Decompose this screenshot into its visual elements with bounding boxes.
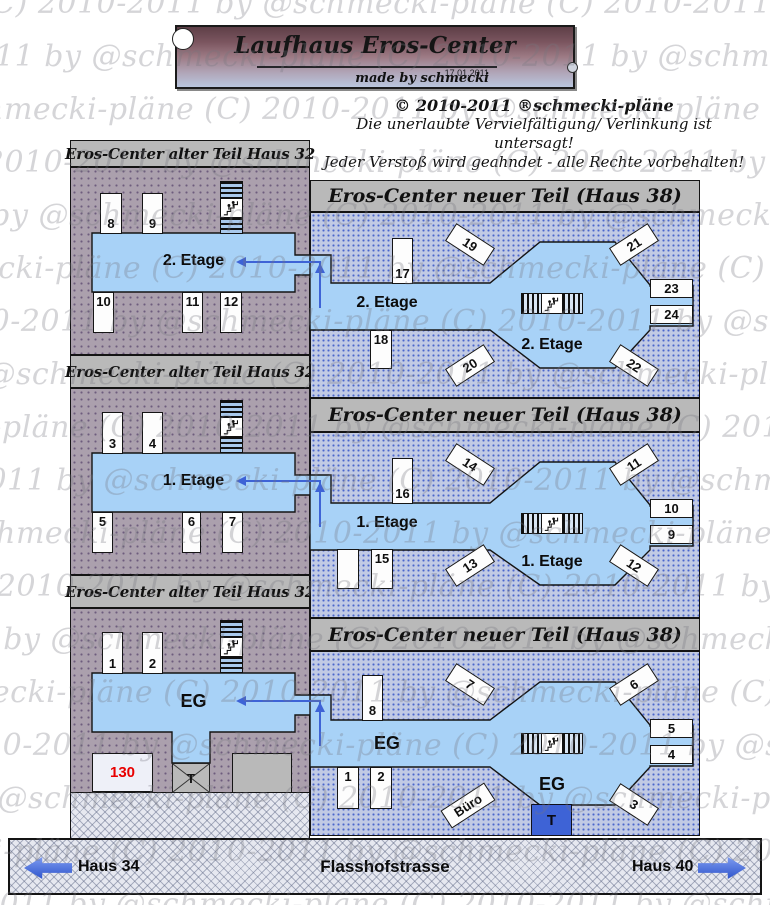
arrow-left-head [236, 476, 246, 486]
copyright-line: © 2010-2011 ®schmecki-pläne [318, 96, 750, 115]
arrow-up-head [315, 482, 325, 492]
floor-label: 1. Etage [332, 514, 442, 532]
room-box: 2 [142, 632, 163, 674]
room-box: 16 [392, 458, 413, 504]
watermark-text: (C) 2010-2011 by @schmecki-pläne (C) 201… [0, 0, 770, 21]
floor-label: EG [496, 774, 608, 795]
room-box: 24 [650, 305, 693, 324]
stairs-stripes [221, 437, 242, 453]
room-box: 1 [337, 767, 359, 809]
stairs-pictogram-icon [221, 637, 242, 657]
room-box: 18 [370, 330, 392, 369]
stairs-stripes [221, 182, 242, 198]
header-new-wing-1: Eros-Center neuer Teil (Haus 38) [310, 398, 700, 432]
entrance-box-new: T [531, 804, 572, 836]
stairs-icon [521, 733, 583, 754]
room-box: 4 [142, 412, 163, 454]
connection-arrow-line [246, 480, 321, 482]
stairs-stripes [563, 514, 582, 533]
floor-label: 1. Etage [496, 553, 608, 571]
title-banner: Laufhaus Eros-Center 17.01.2011 made by … [175, 25, 575, 89]
room-box: 2 [370, 767, 392, 809]
arrow-left-head [236, 696, 246, 706]
stairs-stripes [563, 734, 582, 753]
copyright-block: © 2010-2011 ®schmecki-pläne Die unerlaub… [318, 96, 750, 172]
room-box: 10 [93, 292, 114, 333]
room-box: 5 [92, 512, 113, 553]
header-new-wing-2: Eros-Center neuer Teil (Haus 38) [310, 180, 700, 212]
stairs-icon [220, 181, 243, 234]
room-box: 12 [220, 292, 242, 333]
page-title: Laufhaus Eros-Center [177, 32, 573, 59]
floor-label: 2. Etage [496, 336, 608, 354]
stairs-stripes [221, 621, 242, 637]
entrance-letter: T [187, 771, 195, 786]
room-box: 23 [650, 279, 693, 298]
room-box: 11 [182, 292, 203, 333]
room-box: 15 [371, 549, 393, 589]
stairs-pictogram-icon [541, 734, 563, 753]
arrow-up-head [315, 702, 325, 712]
connection-arrow-line [246, 700, 321, 702]
stairs-icon [521, 293, 583, 314]
stairs-stripes [522, 734, 541, 753]
room-box: 10 [650, 499, 693, 518]
arrow-left-head [236, 257, 246, 267]
stairs-stripes [221, 401, 242, 417]
room-box: 9 [650, 525, 693, 544]
room-box: 9 [142, 193, 163, 234]
stairs-icon [220, 620, 243, 673]
street-band: Haus 34 Flasshofstrasse Haus 40 [8, 838, 762, 895]
floor-label: EG [332, 733, 442, 754]
stairs-pictogram-icon [541, 514, 563, 533]
floor-plan-page: Laufhaus Eros-Center 17.01.2011 made by … [0, 0, 770, 905]
room-box: 8 [100, 193, 122, 234]
banner-pin-left [172, 28, 194, 50]
room-130: 130 [92, 753, 153, 792]
header-old-wing-1: Eros-Center alter Teil Haus 32 [70, 355, 310, 388]
header-old-wing-2: Eros-Center alter Teil Haus 32 [70, 140, 310, 167]
entrance-box-old: T [172, 763, 210, 793]
room-box: 6 [182, 512, 201, 553]
banner-pin-right [567, 62, 578, 73]
room-box: 7 [222, 512, 243, 553]
stairs-pictogram-icon [221, 198, 242, 218]
stairs-stripes [563, 294, 582, 313]
stairs-icon [220, 400, 243, 453]
room-box: 3 [102, 412, 123, 454]
stairs-pictogram-icon [221, 417, 242, 437]
room-box-unnumbered [337, 549, 359, 589]
stairs-stripes [221, 657, 242, 673]
forecourt-area [70, 793, 310, 838]
stairs-icon [521, 513, 583, 534]
room-box: 1 [102, 632, 123, 674]
street-label-right: Haus 40 [632, 858, 693, 876]
stairs-stripes [522, 294, 541, 313]
copyright-line: Die unerlaubte Vervielfältigung/ Verlink… [318, 115, 750, 153]
utility-box [232, 753, 292, 793]
stairs-pictogram-icon [541, 294, 563, 313]
copyright-line: Jeder Verstoß wird geahndet - alle Recht… [318, 153, 750, 172]
arrow-up-head [315, 263, 325, 273]
header-old-wing-eg: Eros-Center alter Teil Haus 32 [70, 575, 310, 608]
credit-text: made by schmecki [347, 71, 489, 86]
stairs-stripes [522, 514, 541, 533]
stairs-stripes [221, 218, 242, 234]
header-new-wing-eg: Eros-Center neuer Teil (Haus 38) [310, 618, 700, 651]
room-box: 17 [392, 238, 413, 284]
connection-arrow-line [246, 261, 321, 263]
room-box: 5 [650, 719, 693, 738]
floor-label: 2. Etage [332, 294, 442, 312]
room-box: 8 [362, 675, 383, 721]
room-box: 4 [650, 745, 693, 764]
